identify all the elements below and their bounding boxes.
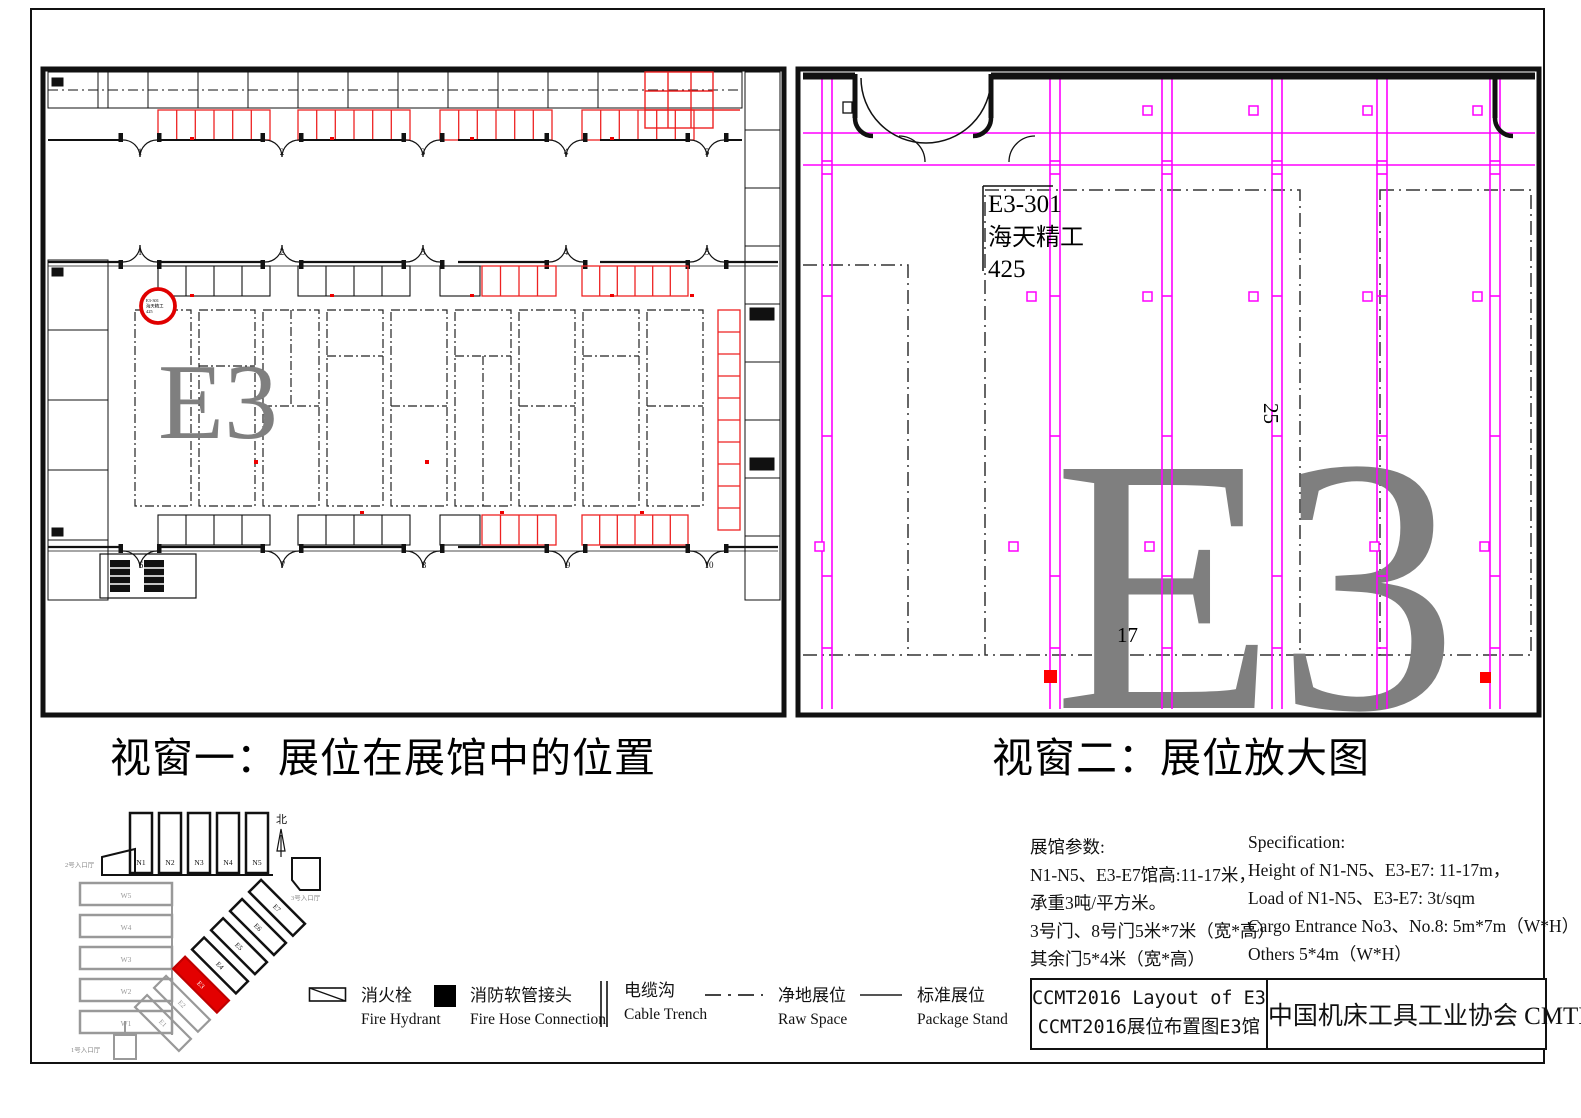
entrance-hall-2-label: 2号入口厅 <box>65 861 95 869</box>
dim-depth: 25 <box>1259 403 1283 424</box>
svg-text:5: 5 <box>705 147 710 157</box>
svg-text:北: 北 <box>276 813 287 826</box>
organization-name: 中国机床工具工业协会 CMTBA <box>1268 980 1581 1048</box>
svg-text:E4: E4 <box>214 960 226 972</box>
fire-hose-connection-mark <box>1044 670 1057 683</box>
drawing-title-en: CCMT2016 Layout of E3 <box>1032 985 1266 1014</box>
svg-text:425: 425 <box>146 309 153 314</box>
svg-text:1: 1 <box>138 147 143 157</box>
svg-text:E7: E7 <box>271 903 283 915</box>
entrance-hall-3 <box>292 858 320 890</box>
svg-text:W3: W3 <box>121 955 132 964</box>
svg-text:N4: N4 <box>223 858 232 867</box>
svg-text:W4: W4 <box>121 923 132 932</box>
north-arrow-icon: 北 <box>276 813 287 857</box>
svg-text:E6: E6 <box>252 922 264 934</box>
drawing-title: CCMT2016 Layout of E3 CCMT2016展位布置图E3馆 <box>1032 980 1268 1048</box>
hall-watermark: E3 <box>158 343 278 462</box>
svg-text:W2: W2 <box>121 987 132 996</box>
svg-text:N1: N1 <box>136 858 145 867</box>
booth-exhibitor: 海天精工 <box>988 224 1084 251</box>
fire-hydrant-icon <box>308 984 348 1006</box>
drawing-title-cn: CCMT2016展位布置图E3馆 <box>1038 1014 1260 1043</box>
svg-text:N3: N3 <box>194 858 203 867</box>
svg-text:N2: N2 <box>165 858 174 867</box>
title-block: CCMT2016 Layout of E3 CCMT2016展位布置图E3馆 中… <box>1030 978 1547 1050</box>
venue-minimap: N1 N2 N3 N4 N5 北 2号入口厅 3号入口厅 W5 W4 W3 W2 <box>55 795 345 1065</box>
cable-trench-icon <box>597 979 611 1029</box>
legend-cable-trench: 电缆沟Cable Trench <box>597 979 707 1029</box>
raw-space-icon <box>703 984 765 1006</box>
entrance-hall-3-label: 3号入口厅 <box>291 894 321 902</box>
booth-area: 425 <box>988 256 1026 283</box>
svg-text:4: 4 <box>564 147 569 157</box>
svg-text:W5: W5 <box>121 891 132 900</box>
legend-fire-hydrant: 消火栓Fire Hydrant <box>308 984 441 1031</box>
legend-raw-space: 净地展位Raw Space <box>703 984 847 1031</box>
svg-text:10: 10 <box>705 560 715 570</box>
window2-caption: 视窗二：展位放大图 <box>992 724 1370 784</box>
detail-panel: E3 <box>795 66 1542 718</box>
overview-panel: 1 2 3 4 5 1 2 3 4 5 <box>40 66 787 718</box>
svg-text:6: 6 <box>139 560 144 570</box>
legend-package-stand: 标准展位Package Stand <box>858 984 1008 1031</box>
entrance-hall-1-label: 1号入口厅 <box>71 1046 101 1054</box>
overview-frame <box>43 69 784 715</box>
window1-caption: 视窗一：展位在展馆中的位置 <box>110 724 656 784</box>
svg-text:E2: E2 <box>176 999 188 1011</box>
svg-text:2: 2 <box>280 147 285 157</box>
svg-text:3: 3 <box>421 147 426 157</box>
svg-text:W1: W1 <box>121 1019 132 1028</box>
svg-text:9: 9 <box>566 560 571 570</box>
legend-fire-hose-connection: 消防软管接头Fire Hose Connection <box>433 984 606 1031</box>
package-stand-icon <box>858 984 904 1006</box>
svg-text:E5: E5 <box>233 941 245 953</box>
fire-hose-connection-icon <box>433 984 457 1008</box>
booth-marker-circle: E3-301 海天精工 425 <box>141 289 175 323</box>
fire-hose-connection-mark <box>1480 672 1491 683</box>
svg-text:N5: N5 <box>252 858 261 867</box>
entrance-hall-1 <box>114 1035 136 1059</box>
svg-text:8: 8 <box>422 560 427 570</box>
svg-text:7: 7 <box>281 560 286 570</box>
hall-watermark-large: E3 <box>1053 383 1458 718</box>
spec-cn: 展馆参数: N1-N5、E3-E7馆高:11-17米， 承重3吨/平方米。 3号… <box>1030 833 1275 973</box>
svg-text:E3-301: E3-301 <box>146 298 159 303</box>
drawing-sheet: 1 2 3 4 5 1 2 3 4 5 <box>0 0 1581 1118</box>
spec-en: Specification: Height of N1-N5、E3-E7: 11… <box>1248 828 1579 968</box>
booth-id: E3-301 <box>988 191 1062 218</box>
svg-text:E1: E1 <box>157 1018 169 1030</box>
dim-width: 17 <box>1117 623 1138 647</box>
